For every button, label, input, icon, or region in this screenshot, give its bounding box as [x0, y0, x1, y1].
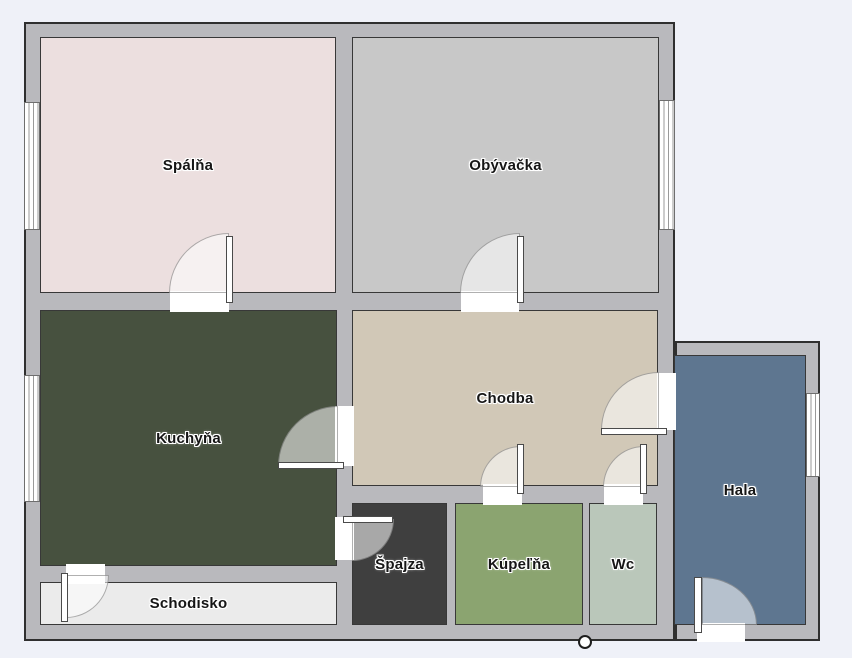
door-leaf-hala-entrance[interactable] — [694, 577, 702, 633]
window-obyvacka-right[interactable] — [659, 100, 675, 230]
door-opening-chodba-hala — [657, 373, 676, 430]
wall-point-handle[interactable] — [578, 635, 592, 649]
window-kuchyna-left[interactable] — [24, 375, 40, 502]
window-hala-right[interactable] — [806, 393, 820, 477]
room-label-spajza: Špajza — [375, 556, 424, 573]
room-label-hala: Hala — [724, 482, 757, 499]
room-label-obyvacka: Obývačka — [469, 157, 541, 174]
door-leaf-spajza[interactable] — [343, 516, 393, 523]
door-opening-wc — [604, 484, 643, 505]
door-leaf-kupelna[interactable] — [517, 444, 524, 494]
door-opening-obyvacka — [461, 291, 519, 312]
door-leaf-spalna[interactable] — [226, 236, 233, 303]
door-leaf-kuchyna[interactable] — [278, 462, 344, 469]
room-label-chodba: Chodba — [476, 390, 533, 407]
room-label-wc: Wc — [612, 556, 635, 573]
room-label-spalna: Spálňa — [163, 157, 213, 174]
door-opening-hala-entrance — [697, 623, 745, 642]
room-label-kuchyna: Kuchyňa — [156, 430, 221, 447]
floorplan-canvas: Spálňa Obývačka Kuchyňa Chodba Hala Špaj… — [0, 0, 852, 658]
door-leaf-obyvacka[interactable] — [517, 236, 524, 303]
room-wc[interactable]: Wc — [589, 503, 657, 625]
window-spalna-left[interactable] — [24, 102, 40, 230]
door-leaf-wc[interactable] — [640, 444, 647, 494]
door-leaf-schodisko[interactable] — [61, 573, 68, 622]
room-label-schodisko: Schodisko — [150, 595, 228, 612]
room-kupelna[interactable]: Kúpeľňa — [455, 503, 583, 625]
door-opening-spalna — [170, 291, 229, 312]
door-leaf-chodba-hala[interactable] — [601, 428, 667, 435]
room-label-kupelna: Kúpeľňa — [488, 556, 550, 573]
